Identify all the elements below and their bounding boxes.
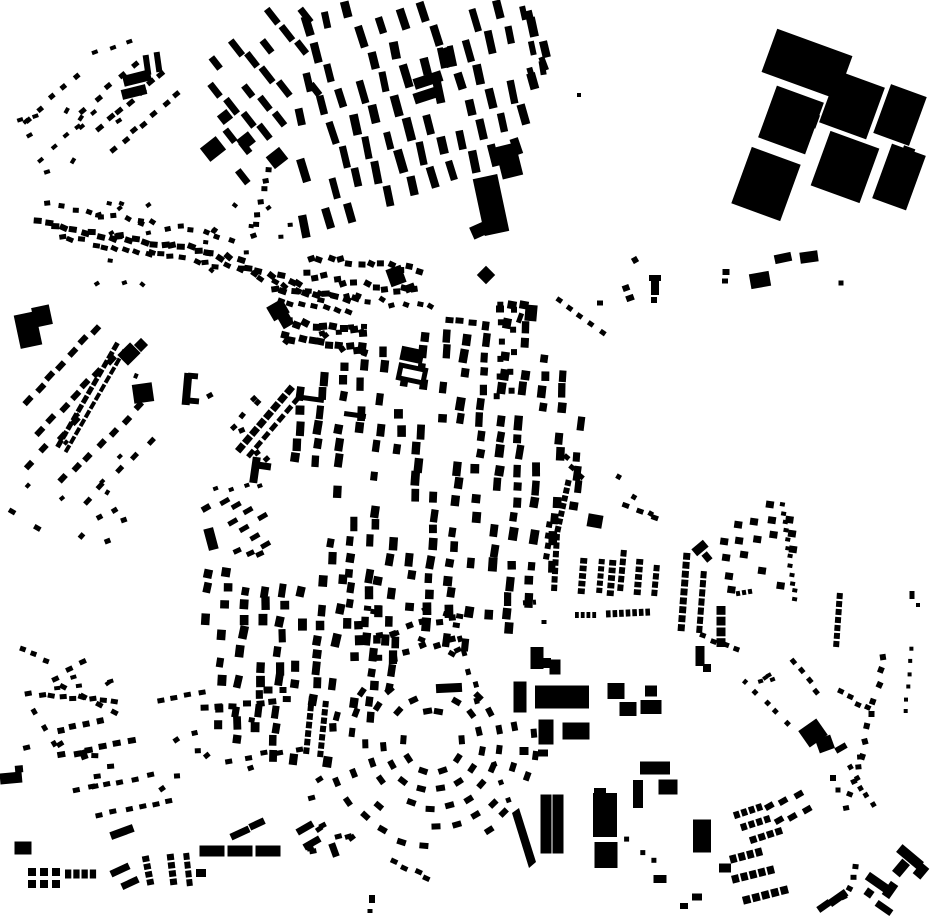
building xyxy=(477,430,486,441)
building xyxy=(221,567,231,578)
building xyxy=(228,703,236,709)
building xyxy=(541,371,549,381)
building xyxy=(653,565,660,572)
building xyxy=(273,646,282,657)
building xyxy=(261,596,270,610)
building xyxy=(68,226,77,233)
building xyxy=(216,657,224,667)
building xyxy=(552,568,558,575)
building xyxy=(346,582,355,594)
building xyxy=(28,880,36,888)
building xyxy=(639,609,644,616)
building xyxy=(264,687,273,694)
building xyxy=(355,422,365,434)
building xyxy=(244,265,253,272)
building xyxy=(851,875,857,880)
building xyxy=(554,432,563,444)
building xyxy=(504,592,511,606)
building xyxy=(312,635,322,646)
building xyxy=(597,573,603,579)
building xyxy=(505,577,515,592)
building xyxy=(114,233,122,240)
building xyxy=(740,551,749,559)
building xyxy=(417,424,425,439)
building xyxy=(681,579,688,586)
building xyxy=(834,625,840,631)
building xyxy=(904,698,908,702)
building xyxy=(785,546,791,551)
building xyxy=(333,424,343,435)
building xyxy=(253,222,259,227)
building xyxy=(88,229,96,235)
building xyxy=(343,618,351,629)
building xyxy=(295,405,304,415)
building xyxy=(356,377,363,390)
building xyxy=(467,558,475,569)
building xyxy=(393,288,400,295)
building xyxy=(311,455,319,467)
building xyxy=(461,368,470,378)
building xyxy=(232,734,241,743)
building xyxy=(336,330,342,335)
building xyxy=(750,518,759,526)
building xyxy=(256,662,265,673)
building xyxy=(595,842,618,868)
building xyxy=(407,570,416,580)
building xyxy=(839,281,844,286)
building xyxy=(488,557,498,572)
building xyxy=(855,764,861,770)
building xyxy=(632,609,637,616)
building xyxy=(523,600,526,605)
building xyxy=(321,709,328,716)
building xyxy=(439,382,447,394)
building xyxy=(110,213,116,219)
building xyxy=(563,723,590,740)
building xyxy=(40,880,48,888)
building-footprint-map xyxy=(0,0,930,924)
building xyxy=(375,655,382,661)
building xyxy=(338,574,347,584)
building xyxy=(836,593,842,599)
building xyxy=(240,615,249,625)
building xyxy=(268,698,277,705)
building xyxy=(580,558,587,564)
building xyxy=(494,444,504,458)
building xyxy=(186,879,193,886)
building xyxy=(753,535,762,543)
building xyxy=(291,661,299,672)
building xyxy=(233,716,241,729)
building xyxy=(348,324,354,329)
building xyxy=(452,461,462,476)
building xyxy=(489,524,498,537)
building xyxy=(659,780,678,795)
building xyxy=(683,553,690,560)
building xyxy=(539,720,554,745)
building xyxy=(370,681,379,691)
building xyxy=(214,703,222,710)
building xyxy=(597,580,603,586)
building xyxy=(497,302,503,308)
building xyxy=(93,773,101,779)
building xyxy=(620,558,627,565)
building xyxy=(366,534,374,546)
building xyxy=(377,260,384,266)
building xyxy=(494,393,500,399)
building xyxy=(389,537,398,551)
building xyxy=(178,223,184,228)
building xyxy=(830,775,836,781)
building xyxy=(174,773,180,778)
building xyxy=(579,565,586,571)
building xyxy=(354,621,363,630)
building xyxy=(33,217,41,224)
building xyxy=(15,765,24,773)
building xyxy=(318,575,328,587)
building xyxy=(411,489,419,502)
building xyxy=(280,601,289,610)
building xyxy=(635,574,642,580)
building xyxy=(290,452,300,463)
building xyxy=(361,324,367,329)
building xyxy=(316,405,325,419)
building xyxy=(910,591,915,599)
building xyxy=(748,589,753,595)
building xyxy=(424,573,432,583)
building xyxy=(410,471,420,486)
building xyxy=(581,612,585,618)
building xyxy=(107,764,114,770)
building xyxy=(269,735,277,746)
building xyxy=(319,322,328,330)
building xyxy=(256,676,265,687)
building xyxy=(76,683,82,688)
building xyxy=(58,203,65,209)
building xyxy=(531,647,544,669)
building xyxy=(545,542,552,549)
building xyxy=(574,480,582,493)
building xyxy=(170,878,178,885)
building xyxy=(520,747,529,755)
building xyxy=(539,402,548,412)
building xyxy=(609,560,616,566)
building xyxy=(376,424,385,437)
building xyxy=(73,870,79,879)
building xyxy=(776,582,785,590)
building xyxy=(69,696,76,701)
building xyxy=(502,608,512,620)
building xyxy=(149,241,157,248)
building xyxy=(725,572,734,580)
building xyxy=(380,360,389,373)
building xyxy=(220,600,229,608)
building xyxy=(497,374,503,380)
building xyxy=(480,352,488,362)
building xyxy=(654,875,667,883)
building xyxy=(556,447,565,461)
building xyxy=(217,629,226,640)
building xyxy=(195,748,201,753)
building xyxy=(224,583,233,591)
building xyxy=(696,646,705,666)
building xyxy=(551,584,557,591)
building xyxy=(520,370,530,381)
building xyxy=(372,519,380,530)
building xyxy=(166,254,173,259)
building xyxy=(391,637,399,649)
building xyxy=(318,605,326,617)
building xyxy=(624,837,629,842)
building xyxy=(682,571,689,578)
building xyxy=(633,780,643,808)
building xyxy=(723,269,730,275)
building xyxy=(360,359,369,371)
building xyxy=(369,895,375,903)
building xyxy=(195,248,203,254)
building xyxy=(597,301,603,306)
building xyxy=(184,861,191,868)
building xyxy=(836,788,841,793)
building xyxy=(480,367,488,376)
building xyxy=(531,728,538,737)
building xyxy=(836,601,842,607)
building xyxy=(514,682,527,713)
building xyxy=(370,505,380,518)
building xyxy=(680,597,687,604)
building xyxy=(443,344,451,359)
building xyxy=(678,624,685,631)
building xyxy=(529,496,539,508)
building xyxy=(0,772,22,785)
building xyxy=(470,464,479,474)
building xyxy=(528,600,531,605)
building xyxy=(350,517,357,532)
building xyxy=(537,385,547,398)
building xyxy=(93,243,101,249)
building xyxy=(578,588,585,594)
building xyxy=(617,584,624,591)
building xyxy=(442,329,450,343)
building xyxy=(290,679,300,688)
building xyxy=(280,687,287,693)
building xyxy=(598,566,604,572)
building xyxy=(375,393,384,406)
building xyxy=(612,610,617,617)
building xyxy=(235,645,245,658)
building xyxy=(464,606,475,618)
building xyxy=(304,739,311,746)
building xyxy=(734,521,743,529)
building xyxy=(350,279,357,285)
building xyxy=(509,388,515,394)
building xyxy=(607,590,614,596)
building xyxy=(177,244,185,250)
building xyxy=(350,652,359,661)
building xyxy=(535,686,589,709)
building xyxy=(346,536,354,546)
building xyxy=(538,750,548,757)
building xyxy=(201,704,209,710)
building xyxy=(185,870,192,877)
building xyxy=(735,537,744,545)
building xyxy=(652,581,659,588)
building xyxy=(543,553,550,560)
building xyxy=(608,567,615,573)
building xyxy=(107,258,113,263)
building xyxy=(131,235,140,242)
building xyxy=(852,864,858,870)
building xyxy=(780,502,786,507)
building xyxy=(425,806,434,812)
building xyxy=(316,621,325,631)
building xyxy=(653,573,660,580)
building xyxy=(311,661,320,675)
building xyxy=(365,586,373,599)
building xyxy=(698,598,705,606)
building xyxy=(507,561,516,570)
map-canvas xyxy=(0,0,930,924)
building xyxy=(906,685,910,689)
building xyxy=(357,342,367,355)
building xyxy=(445,558,455,568)
building xyxy=(908,659,912,663)
building xyxy=(651,589,658,596)
building xyxy=(308,696,315,703)
building xyxy=(393,444,402,455)
building xyxy=(559,370,567,382)
building xyxy=(767,516,776,524)
building xyxy=(788,530,797,538)
building xyxy=(445,317,453,324)
building xyxy=(727,586,736,594)
building xyxy=(696,626,703,634)
building xyxy=(436,683,462,693)
building xyxy=(645,609,650,616)
building xyxy=(510,327,516,333)
building xyxy=(305,730,312,737)
building xyxy=(518,381,527,395)
building xyxy=(100,697,107,703)
building xyxy=(448,527,456,537)
building xyxy=(550,660,561,675)
building xyxy=(480,385,487,395)
building xyxy=(904,709,908,713)
building xyxy=(320,726,327,733)
building xyxy=(348,728,355,738)
building xyxy=(89,696,97,702)
building xyxy=(634,582,641,588)
building xyxy=(328,552,337,565)
building xyxy=(372,576,382,586)
building xyxy=(73,208,79,213)
building xyxy=(320,372,329,387)
building xyxy=(28,868,36,876)
building xyxy=(606,610,611,617)
building xyxy=(317,751,324,758)
building xyxy=(385,616,393,627)
building xyxy=(493,477,502,491)
building xyxy=(698,607,705,615)
building xyxy=(319,734,326,741)
building xyxy=(238,265,245,270)
building xyxy=(908,672,912,676)
building xyxy=(640,762,670,775)
building xyxy=(201,260,208,266)
building xyxy=(39,692,47,698)
building xyxy=(243,700,251,706)
building xyxy=(251,722,260,732)
building xyxy=(454,477,464,490)
building xyxy=(787,563,793,568)
building xyxy=(278,235,283,239)
building xyxy=(857,754,863,759)
building xyxy=(340,363,348,372)
building xyxy=(717,628,726,637)
building xyxy=(65,870,71,879)
building xyxy=(357,406,365,421)
building xyxy=(528,562,536,571)
building xyxy=(428,538,437,551)
building xyxy=(373,284,380,290)
building xyxy=(256,846,281,857)
building xyxy=(511,307,517,313)
building xyxy=(380,742,387,752)
building xyxy=(349,697,359,708)
building xyxy=(167,854,175,861)
building xyxy=(542,620,547,624)
building xyxy=(60,694,67,699)
building xyxy=(292,438,301,451)
building xyxy=(868,711,874,717)
building xyxy=(651,281,659,295)
building xyxy=(679,606,686,613)
building xyxy=(641,700,662,714)
building xyxy=(916,603,920,607)
building xyxy=(522,321,530,333)
building xyxy=(608,683,625,699)
building xyxy=(306,721,313,728)
building xyxy=(228,846,253,857)
building xyxy=(834,633,840,639)
building xyxy=(636,559,643,565)
building xyxy=(640,850,645,855)
building xyxy=(792,597,798,602)
building xyxy=(682,562,689,569)
building xyxy=(366,712,374,723)
building xyxy=(541,795,552,854)
building xyxy=(651,297,657,303)
building xyxy=(303,270,310,276)
building xyxy=(553,542,559,549)
building xyxy=(313,438,322,449)
building xyxy=(524,305,537,322)
building xyxy=(322,756,333,768)
building xyxy=(475,412,483,427)
building xyxy=(532,462,540,476)
building xyxy=(307,704,314,711)
building xyxy=(792,588,798,593)
building xyxy=(476,398,485,411)
building xyxy=(649,275,661,281)
building xyxy=(239,599,248,609)
building xyxy=(217,675,227,686)
building xyxy=(244,250,249,254)
building xyxy=(692,894,702,901)
building xyxy=(450,495,460,507)
building xyxy=(532,751,539,761)
building xyxy=(450,541,458,552)
